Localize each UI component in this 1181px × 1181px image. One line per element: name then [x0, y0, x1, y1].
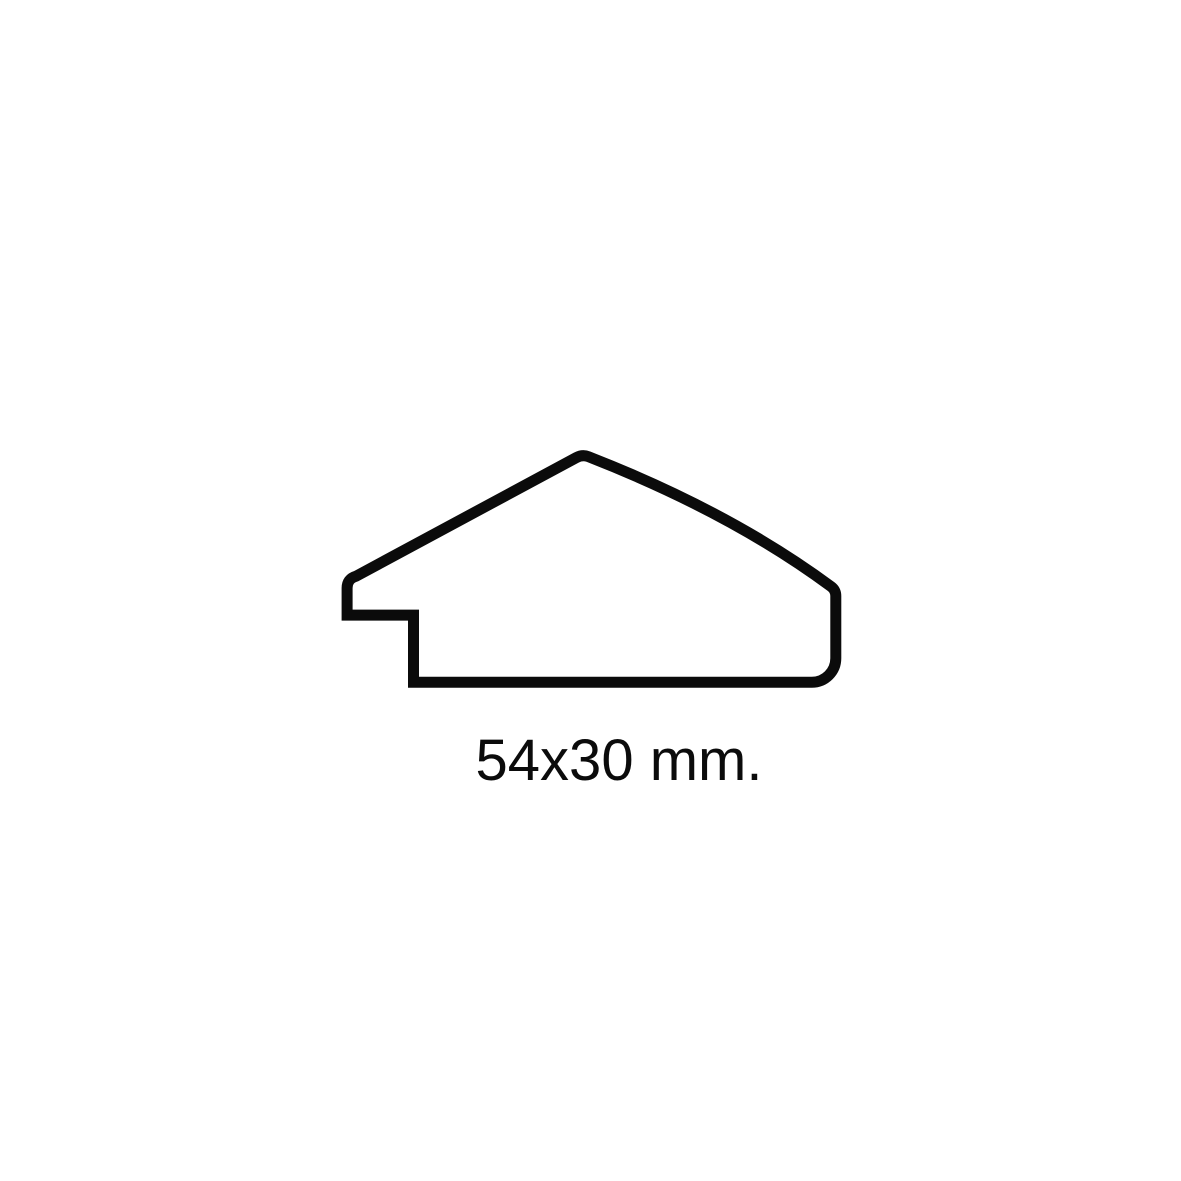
- svg-text:54x30 mm.: 54x30 mm.: [476, 728, 763, 793]
